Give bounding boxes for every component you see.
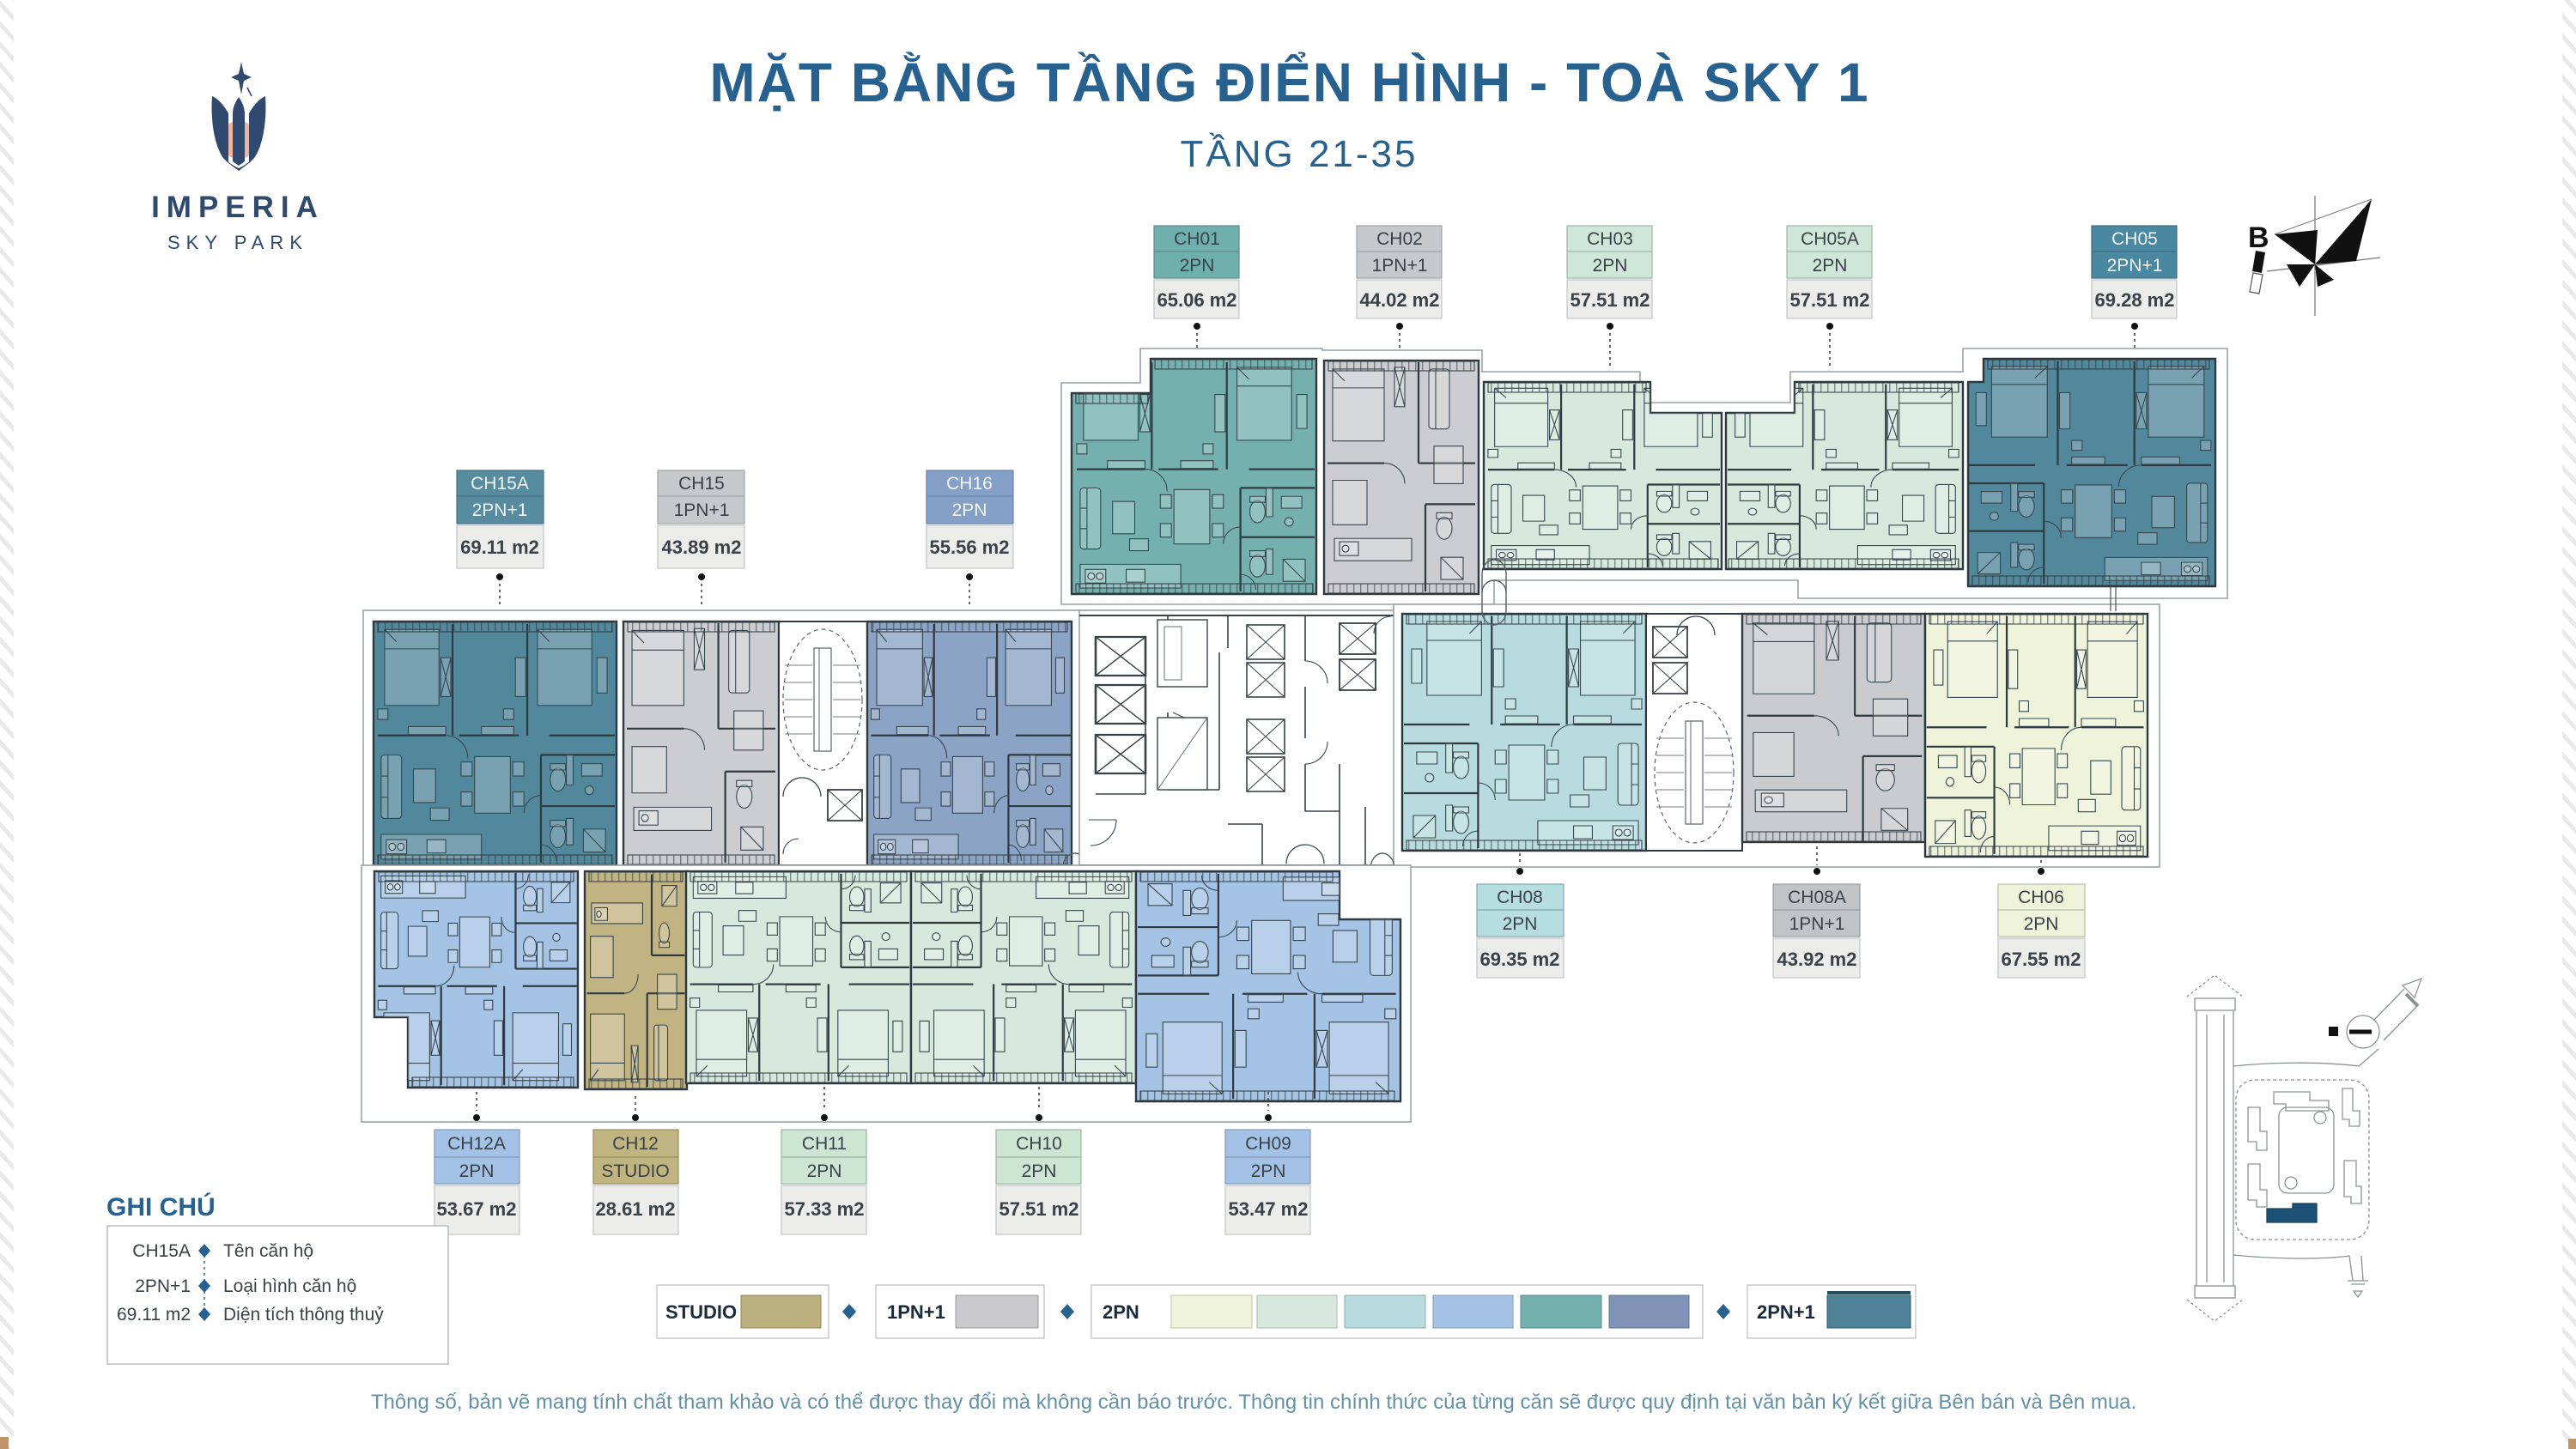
svg-text:1PN+1: 1PN+1: [674, 500, 730, 520]
svg-text:57.33 m2: 57.33 m2: [785, 1198, 865, 1220]
svg-text:STUDIO: STUDIO: [665, 1301, 737, 1323]
svg-text:CH05A: CH05A: [1801, 229, 1859, 249]
svg-text:2PN: 2PN: [1503, 914, 1538, 934]
svg-text:B: B: [2248, 221, 2269, 254]
svg-text:IMPERIA: IMPERIA: [151, 191, 325, 224]
svg-text:2PN+1: 2PN+1: [472, 500, 528, 520]
svg-text:CH09: CH09: [1245, 1134, 1291, 1154]
svg-text:2PN+1: 2PN+1: [135, 1276, 191, 1296]
svg-text:2PN: 2PN: [459, 1161, 495, 1181]
svg-text:1PN+1: 1PN+1: [887, 1301, 945, 1323]
svg-text:2PN: 2PN: [807, 1161, 842, 1181]
svg-text:2PN: 2PN: [1813, 256, 1848, 276]
svg-text:Thông số, bản vẽ mang tính chấ: Thông số, bản vẽ mang tính chất tham khả…: [371, 1391, 2136, 1414]
svg-text:2PN: 2PN: [952, 500, 987, 520]
svg-text:CH15: CH15: [678, 474, 725, 494]
svg-text:2PN: 2PN: [1593, 256, 1628, 276]
svg-text:CH01: CH01: [1174, 229, 1220, 249]
svg-text:2PN: 2PN: [1180, 256, 1215, 276]
svg-text:69.28 m2: 69.28 m2: [2095, 289, 2175, 311]
svg-text:CH05: CH05: [2111, 229, 2158, 249]
svg-text:1PN+1: 1PN+1: [1789, 914, 1845, 934]
svg-text:CH16: CH16: [946, 474, 993, 494]
svg-text:53.47 m2: 53.47 m2: [1229, 1198, 1309, 1220]
svg-text:CH12: CH12: [612, 1134, 659, 1154]
svg-text:STUDIO: STUDIO: [601, 1161, 669, 1181]
svg-text:2PN+1: 2PN+1: [2107, 256, 2163, 276]
svg-text:65.06 m2: 65.06 m2: [1157, 289, 1237, 311]
svg-text:69.11 m2: 69.11 m2: [460, 537, 539, 558]
svg-text:CH08A: CH08A: [1788, 888, 1846, 907]
svg-text:2PN: 2PN: [2024, 914, 2059, 934]
svg-text:CH06: CH06: [2018, 888, 2064, 907]
svg-text:CH15A: CH15A: [471, 474, 529, 494]
svg-text:SKY PARK: SKY PARK: [167, 232, 308, 253]
svg-text:Loại hình căn hộ: Loại hình căn hộ: [223, 1276, 356, 1296]
svg-text:TẦNG 21-35: TẦNG 21-35: [1181, 132, 1419, 175]
svg-text:28.61 m2: 28.61 m2: [596, 1198, 676, 1220]
svg-text:2PN+1: 2PN+1: [1757, 1301, 1815, 1323]
svg-text:53.67 m2: 53.67 m2: [437, 1198, 517, 1220]
svg-text:67.55 m2: 67.55 m2: [2002, 949, 2081, 970]
svg-text:2PN: 2PN: [1103, 1301, 1139, 1323]
svg-text:43.89 m2: 43.89 m2: [662, 537, 742, 558]
svg-text:2PN: 2PN: [1251, 1161, 1286, 1181]
svg-text:69.11 m2: 69.11 m2: [117, 1305, 191, 1325]
svg-text:CH12A: CH12A: [447, 1134, 506, 1154]
svg-text:1PN+1: 1PN+1: [1372, 256, 1428, 276]
svg-text:CH11: CH11: [802, 1134, 847, 1154]
svg-text:57.51 m2: 57.51 m2: [999, 1198, 1079, 1220]
svg-text:CH08: CH08: [1497, 888, 1543, 907]
svg-text:55.56 m2: 55.56 m2: [930, 537, 1010, 558]
svg-text:GHI CHÚ: GHI CHÚ: [106, 1192, 216, 1222]
svg-text:69.35 m2: 69.35 m2: [1480, 949, 1560, 970]
svg-text:CH03: CH03: [1587, 229, 1633, 249]
svg-text:43.92 m2: 43.92 m2: [1777, 949, 1857, 970]
svg-text:Tên căn hộ: Tên căn hộ: [223, 1241, 313, 1261]
svg-text:CH15A: CH15A: [132, 1241, 191, 1261]
svg-text:2PN: 2PN: [1022, 1161, 1057, 1181]
svg-text:CH02: CH02: [1376, 229, 1423, 249]
svg-text:CH10: CH10: [1016, 1134, 1062, 1154]
svg-text:44.02 m2: 44.02 m2: [1360, 289, 1440, 311]
svg-text:Diện tích thông thuỷ: Diện tích thông thuỷ: [223, 1305, 384, 1325]
svg-text:57.51 m2: 57.51 m2: [1790, 289, 1870, 311]
svg-text:57.51 m2: 57.51 m2: [1571, 289, 1650, 311]
svg-text:MẶT BẰNG TẦNG ĐIỂN HÌNH - TOÀ: MẶT BẰNG TẦNG ĐIỂN HÌNH - TOÀ SKY 1: [709, 51, 1869, 113]
